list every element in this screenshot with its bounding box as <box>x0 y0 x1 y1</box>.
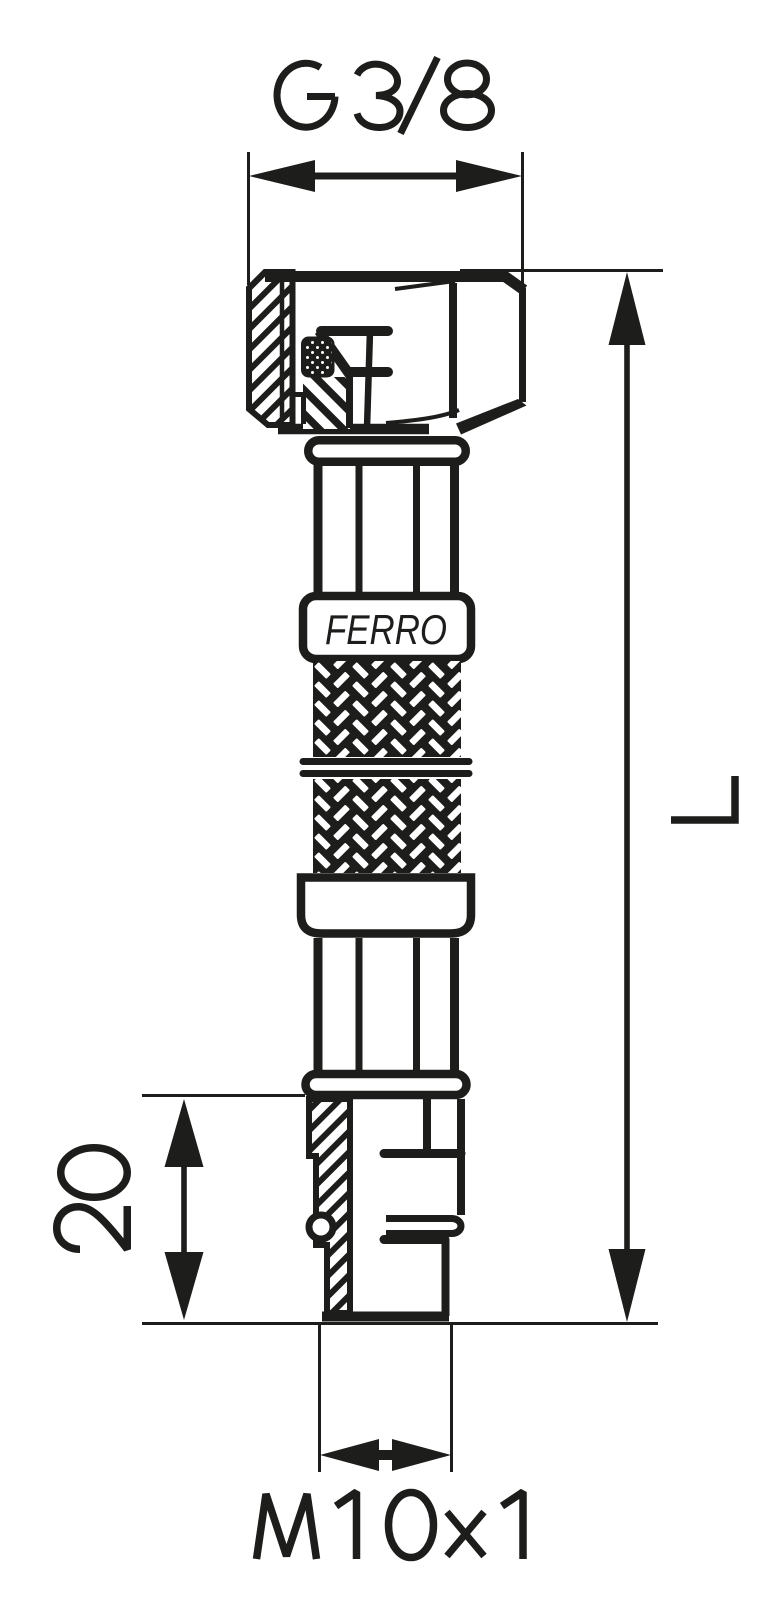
svg-text:FERRO: FERRO <box>325 606 447 653</box>
